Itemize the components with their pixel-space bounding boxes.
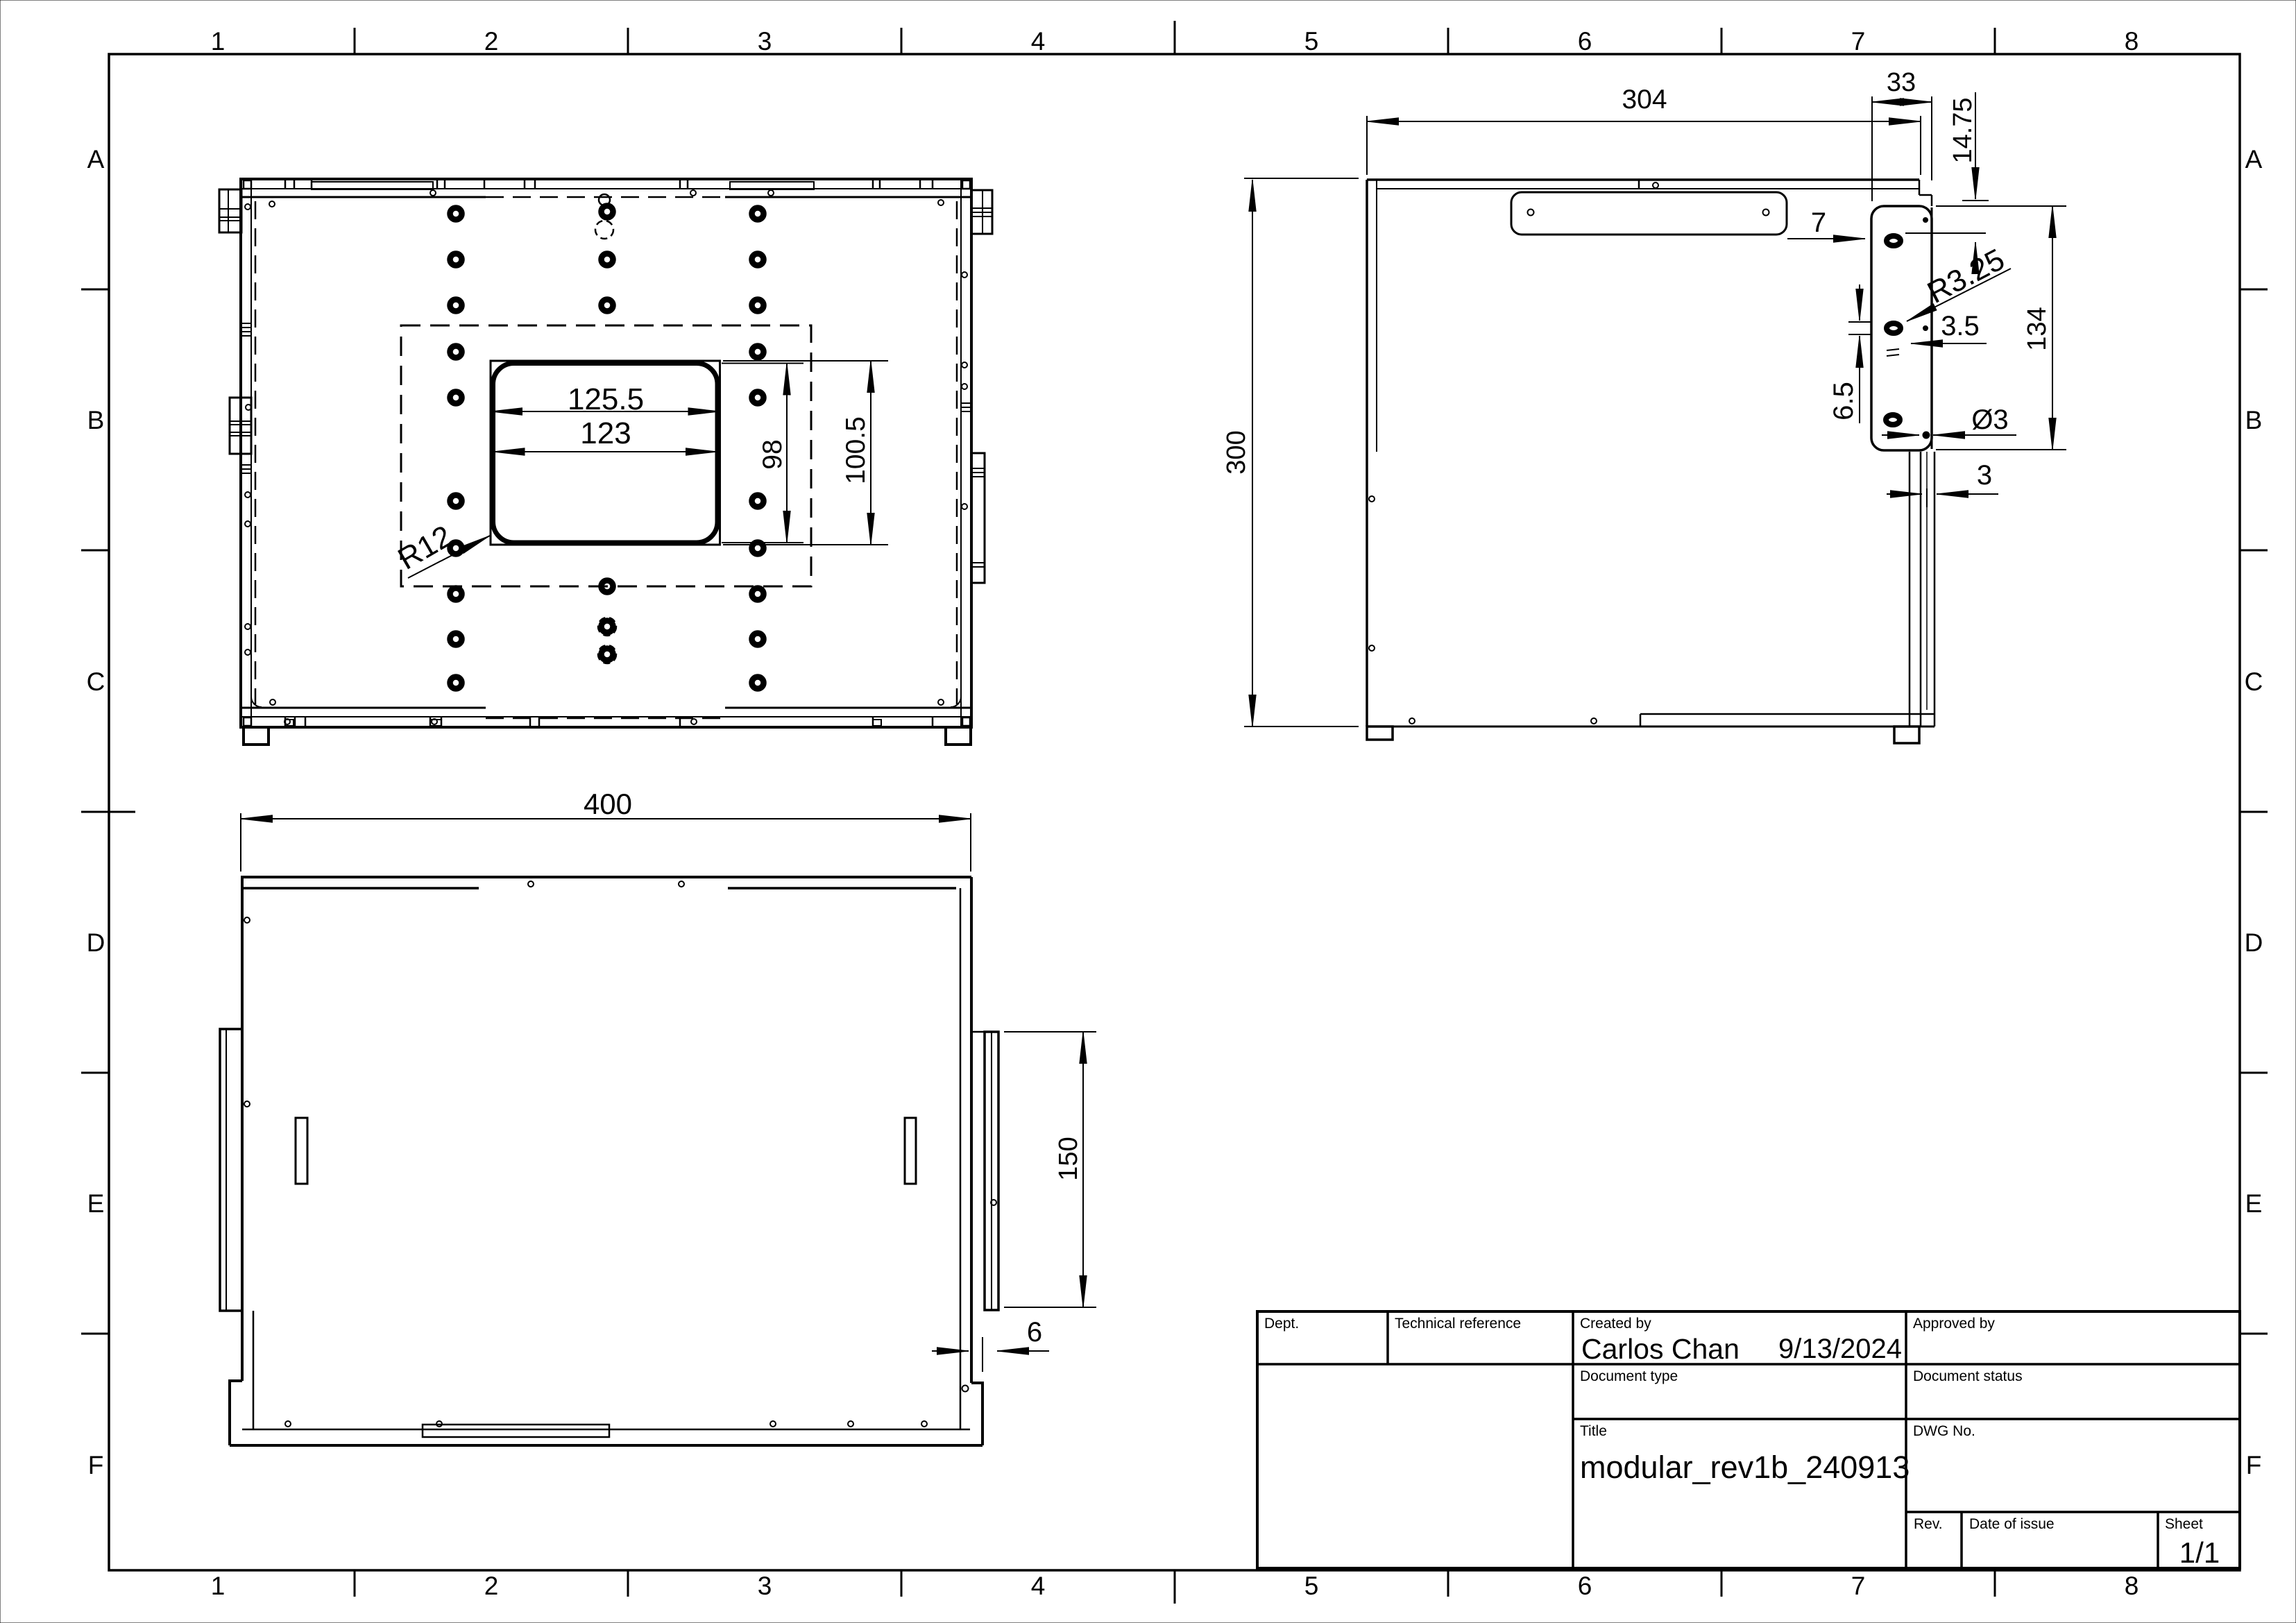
- svg-text:Carlos Chan: Carlos Chan: [1581, 1333, 1740, 1365]
- svg-text:6: 6: [1027, 1317, 1042, 1348]
- svg-text:304: 304: [1622, 85, 1667, 114]
- svg-text:98: 98: [758, 439, 788, 469]
- svg-text:D: D: [87, 928, 105, 957]
- svg-text:150: 150: [1054, 1137, 1083, 1180]
- svg-text:1: 1: [211, 1572, 226, 1600]
- svg-text:123: 123: [580, 416, 631, 450]
- svg-text:Created by: Created by: [1580, 1316, 1651, 1332]
- svg-text:5: 5: [1304, 1572, 1319, 1600]
- svg-text:8: 8: [2125, 27, 2139, 56]
- svg-text:F: F: [2246, 1451, 2262, 1479]
- svg-text:6.5: 6.5: [1828, 382, 1859, 420]
- svg-text:D: D: [2245, 928, 2263, 957]
- svg-text:Date of issue: Date of issue: [1969, 1516, 2055, 1532]
- svg-text:F: F: [88, 1451, 104, 1479]
- svg-text:3: 3: [758, 27, 772, 56]
- svg-text:Technical reference: Technical reference: [1395, 1316, 1521, 1332]
- svg-text:100.5: 100.5: [841, 416, 871, 484]
- svg-text:DWG No.: DWG No.: [1913, 1423, 1975, 1439]
- svg-text:1/1: 1/1: [2179, 1536, 2220, 1569]
- svg-text:9/13/2024: 9/13/2024: [1778, 1334, 1902, 1364]
- svg-text:8: 8: [2125, 1572, 2139, 1600]
- svg-text:33: 33: [1887, 68, 1916, 97]
- svg-text:2: 2: [484, 1572, 499, 1600]
- svg-text:Rev.: Rev.: [1914, 1516, 1943, 1532]
- svg-text:4: 4: [1031, 1572, 1046, 1600]
- svg-text:B: B: [87, 406, 105, 434]
- svg-text:2: 2: [484, 27, 499, 56]
- svg-text:A: A: [87, 145, 105, 173]
- svg-text:Ø3: Ø3: [1971, 405, 2008, 435]
- svg-text:E: E: [2245, 1189, 2263, 1218]
- svg-text:E: E: [87, 1189, 105, 1218]
- svg-text:Sheet: Sheet: [2165, 1516, 2203, 1532]
- svg-text:6: 6: [1578, 27, 1592, 56]
- svg-text:Title: Title: [1580, 1423, 1607, 1439]
- svg-text:Dept.: Dept.: [1264, 1316, 1299, 1332]
- svg-text:modular_rev1b_240913: modular_rev1b_240913: [1580, 1450, 1910, 1485]
- svg-text:4: 4: [1031, 27, 1046, 56]
- svg-text:125.5: 125.5: [568, 382, 644, 416]
- svg-text:14.75: 14.75: [1948, 97, 1978, 163]
- svg-text:A: A: [2245, 145, 2263, 173]
- svg-text:400: 400: [584, 788, 632, 820]
- svg-text:B: B: [2245, 406, 2263, 434]
- svg-text:Document status: Document status: [1913, 1368, 2023, 1384]
- svg-text:3: 3: [1977, 460, 1992, 491]
- svg-text:3.5: 3.5: [1941, 311, 1980, 341]
- svg-text:300: 300: [1222, 430, 1251, 474]
- svg-text:7: 7: [1851, 1572, 1866, 1600]
- svg-text:1: 1: [211, 27, 226, 56]
- svg-text:6: 6: [1578, 1572, 1592, 1600]
- svg-text:5: 5: [1304, 27, 1319, 56]
- svg-text:7: 7: [1811, 207, 1826, 238]
- svg-text:C: C: [87, 668, 105, 696]
- svg-text:3: 3: [758, 1572, 772, 1600]
- svg-text:Document type: Document type: [1580, 1368, 1678, 1384]
- svg-text:Approved by: Approved by: [1913, 1316, 1995, 1332]
- svg-text:134: 134: [2023, 307, 2052, 350]
- svg-text:7: 7: [1851, 27, 1866, 56]
- svg-text:C: C: [2245, 668, 2263, 696]
